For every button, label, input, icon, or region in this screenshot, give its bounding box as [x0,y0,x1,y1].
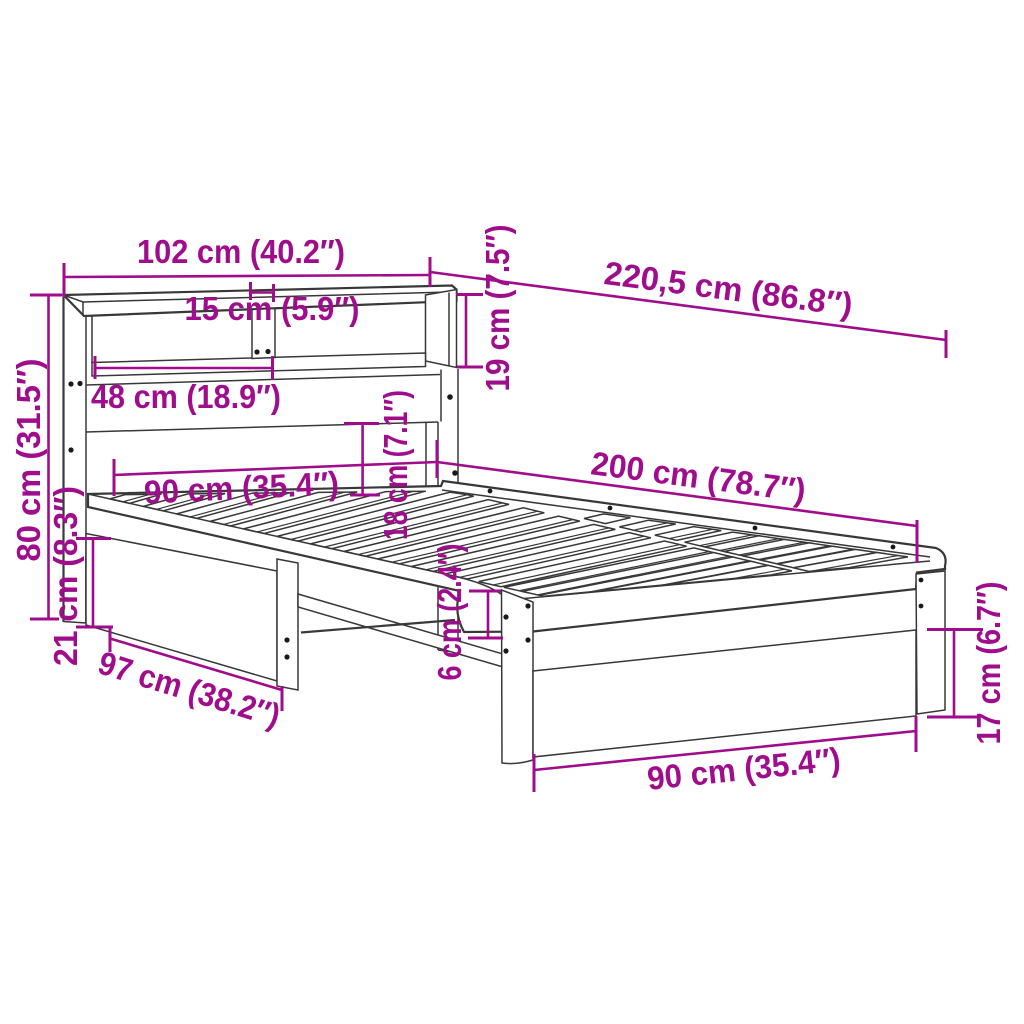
svg-text:21 cm (8.3″): 21 cm (8.3″) [47,486,84,666]
svg-text:80 cm (31.5″): 80 cm (31.5″) [10,359,47,562]
svg-text:18 cm (7.1″): 18 cm (7.1″) [377,390,414,540]
svg-text:48 cm (18.9″): 48 cm (18.9″) [91,378,281,415]
svg-text:15 cm (5.9″): 15 cm (5.9″) [185,290,360,327]
svg-text:19 cm (7.5″): 19 cm (7.5″) [479,225,516,392]
svg-text:6 cm (2.4″): 6 cm (2.4″) [431,544,468,681]
svg-text:102 cm (40.2″): 102 cm (40.2″) [137,233,345,270]
svg-text:17 cm (6.7″): 17 cm (6.7″) [970,582,1007,745]
